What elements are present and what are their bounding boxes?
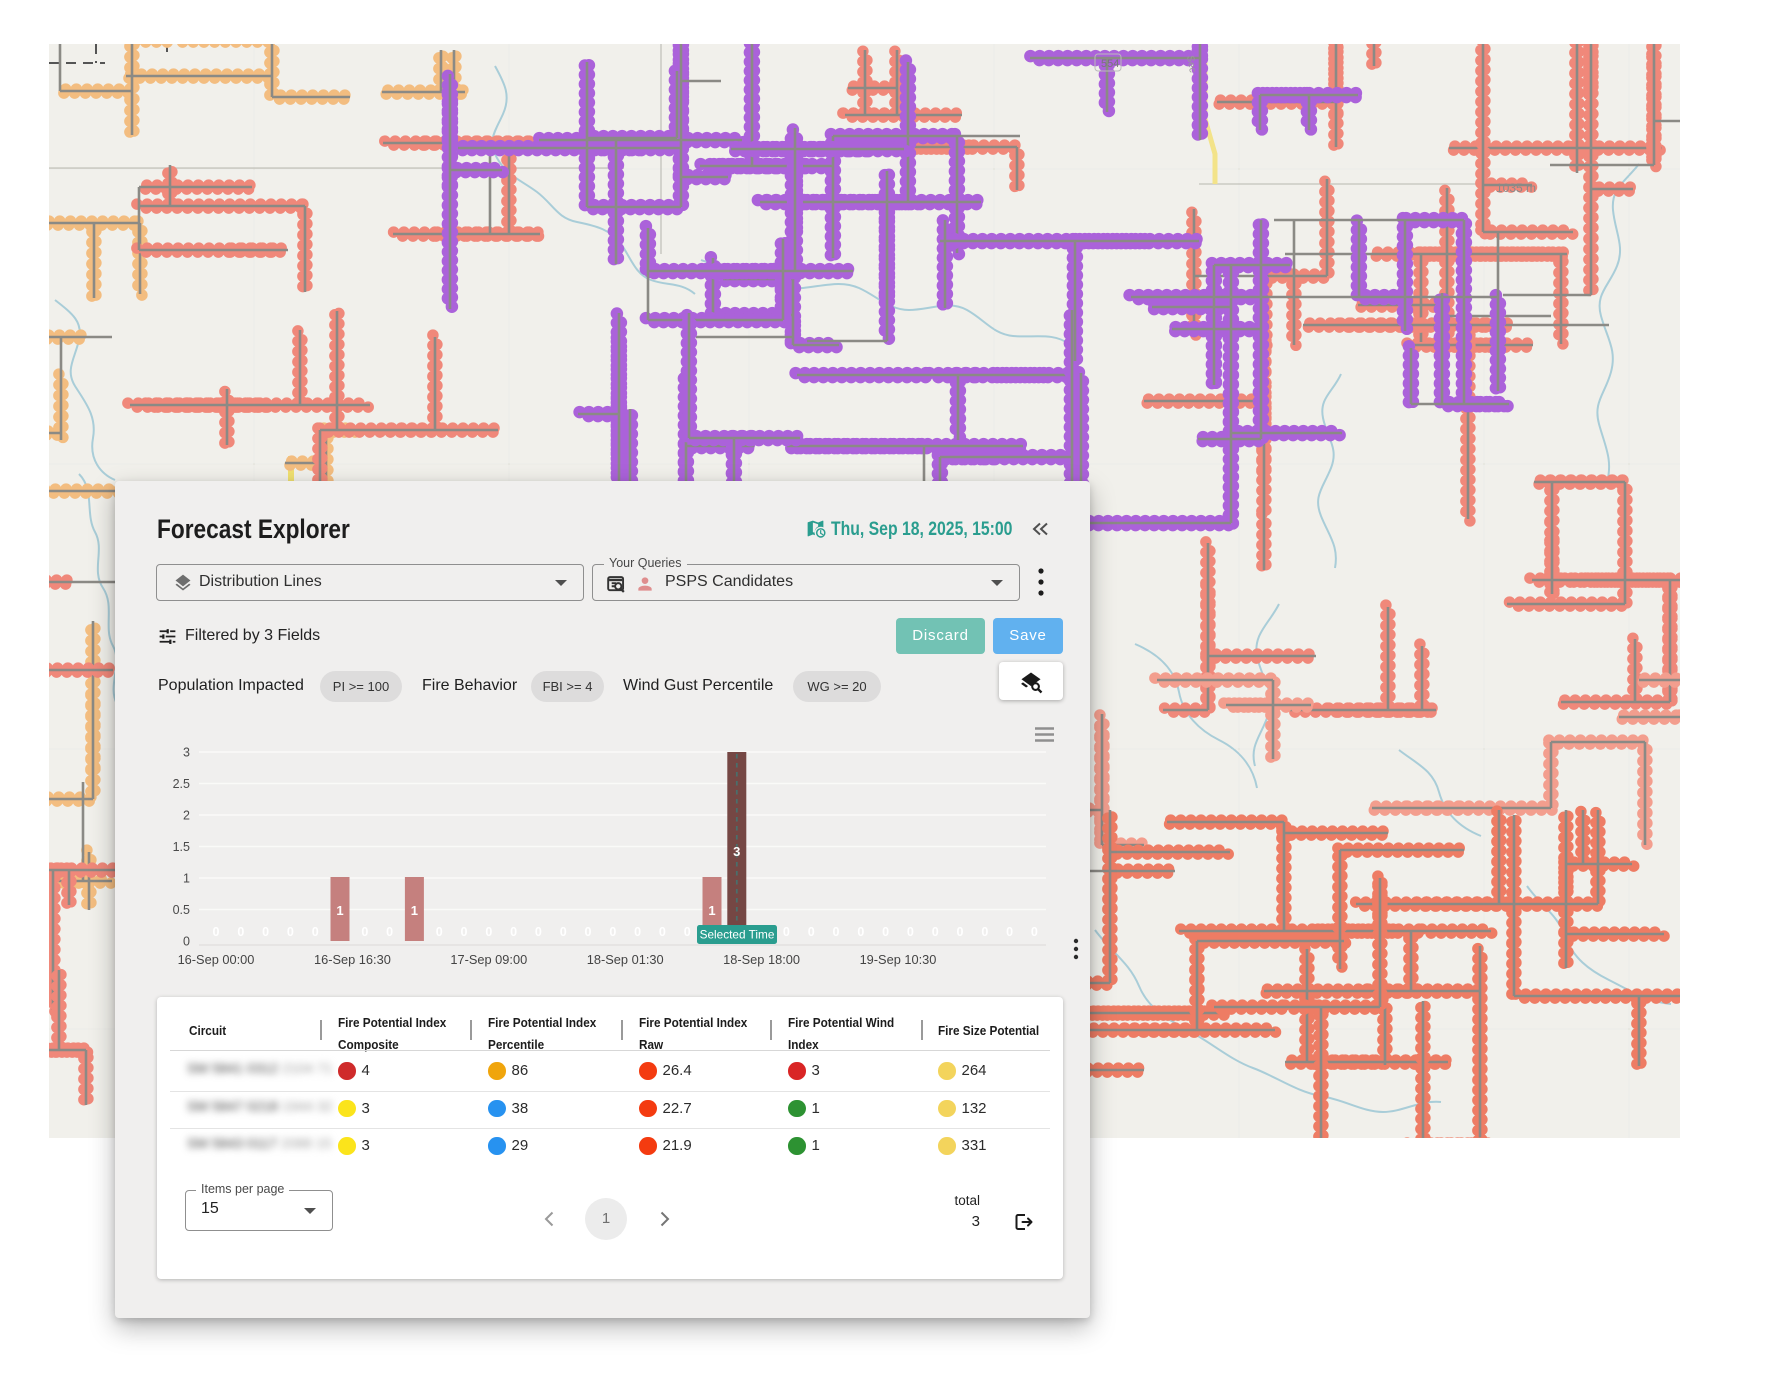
- svg-text:0: 0: [485, 925, 492, 939]
- svg-text:0: 0: [560, 925, 567, 939]
- svg-text:0: 0: [361, 925, 368, 939]
- svg-text:0: 0: [808, 925, 815, 939]
- svg-text:1: 1: [411, 903, 418, 918]
- svg-text:0: 0: [213, 925, 220, 939]
- svg-text:2: 2: [183, 809, 190, 823]
- svg-text:0: 0: [981, 925, 988, 939]
- svg-text:0: 0: [634, 925, 641, 939]
- svg-text:0: 0: [585, 925, 592, 939]
- svg-text:0: 0: [535, 925, 542, 939]
- svg-text:0.5: 0.5: [173, 903, 190, 917]
- svg-text:0: 0: [609, 925, 616, 939]
- svg-text:3: 3: [733, 844, 740, 859]
- svg-text:1035 m: 1035 m: [1496, 181, 1536, 195]
- svg-text:2.5: 2.5: [173, 777, 190, 791]
- svg-text:1: 1: [708, 903, 715, 918]
- svg-text:0: 0: [237, 925, 244, 939]
- svg-text:0: 0: [857, 925, 864, 939]
- svg-text:0: 0: [957, 925, 964, 939]
- svg-text:554: 554: [1101, 58, 1119, 70]
- svg-text:17-Sep 09:00: 17-Sep 09:00: [450, 952, 527, 967]
- svg-text:0: 0: [1031, 925, 1038, 939]
- svg-text:0: 0: [183, 935, 190, 949]
- svg-text:1.5: 1.5: [173, 840, 190, 854]
- svg-text:0: 0: [659, 925, 666, 939]
- svg-text:0: 0: [833, 925, 840, 939]
- svg-text:0: 0: [262, 925, 269, 939]
- svg-text:0: 0: [312, 925, 319, 939]
- svg-text:18-Sep 18:00: 18-Sep 18:00: [723, 952, 800, 967]
- svg-text:Selected Time: Selected Time: [700, 928, 775, 942]
- svg-text:19-Sep 10:30: 19-Sep 10:30: [860, 952, 937, 967]
- svg-text:0: 0: [684, 925, 691, 939]
- svg-text:18-Sep 01:30: 18-Sep 01:30: [587, 952, 664, 967]
- svg-text:0: 0: [461, 925, 468, 939]
- svg-text:0: 0: [386, 925, 393, 939]
- svg-text:16-Sep 00:00: 16-Sep 00:00: [178, 952, 255, 967]
- svg-text:0: 0: [510, 925, 517, 939]
- svg-text:1: 1: [183, 872, 190, 886]
- svg-text:0: 0: [932, 925, 939, 939]
- svg-text:0: 0: [436, 925, 443, 939]
- svg-text:0: 0: [783, 925, 790, 939]
- svg-text:0: 0: [1006, 925, 1013, 939]
- svg-text:0: 0: [287, 925, 294, 939]
- svg-text:3: 3: [183, 746, 190, 760]
- svg-text:16-Sep 16:30: 16-Sep 16:30: [314, 952, 391, 967]
- svg-text:1: 1: [336, 903, 343, 918]
- svg-text:0: 0: [907, 925, 914, 939]
- svg-text:0: 0: [882, 925, 889, 939]
